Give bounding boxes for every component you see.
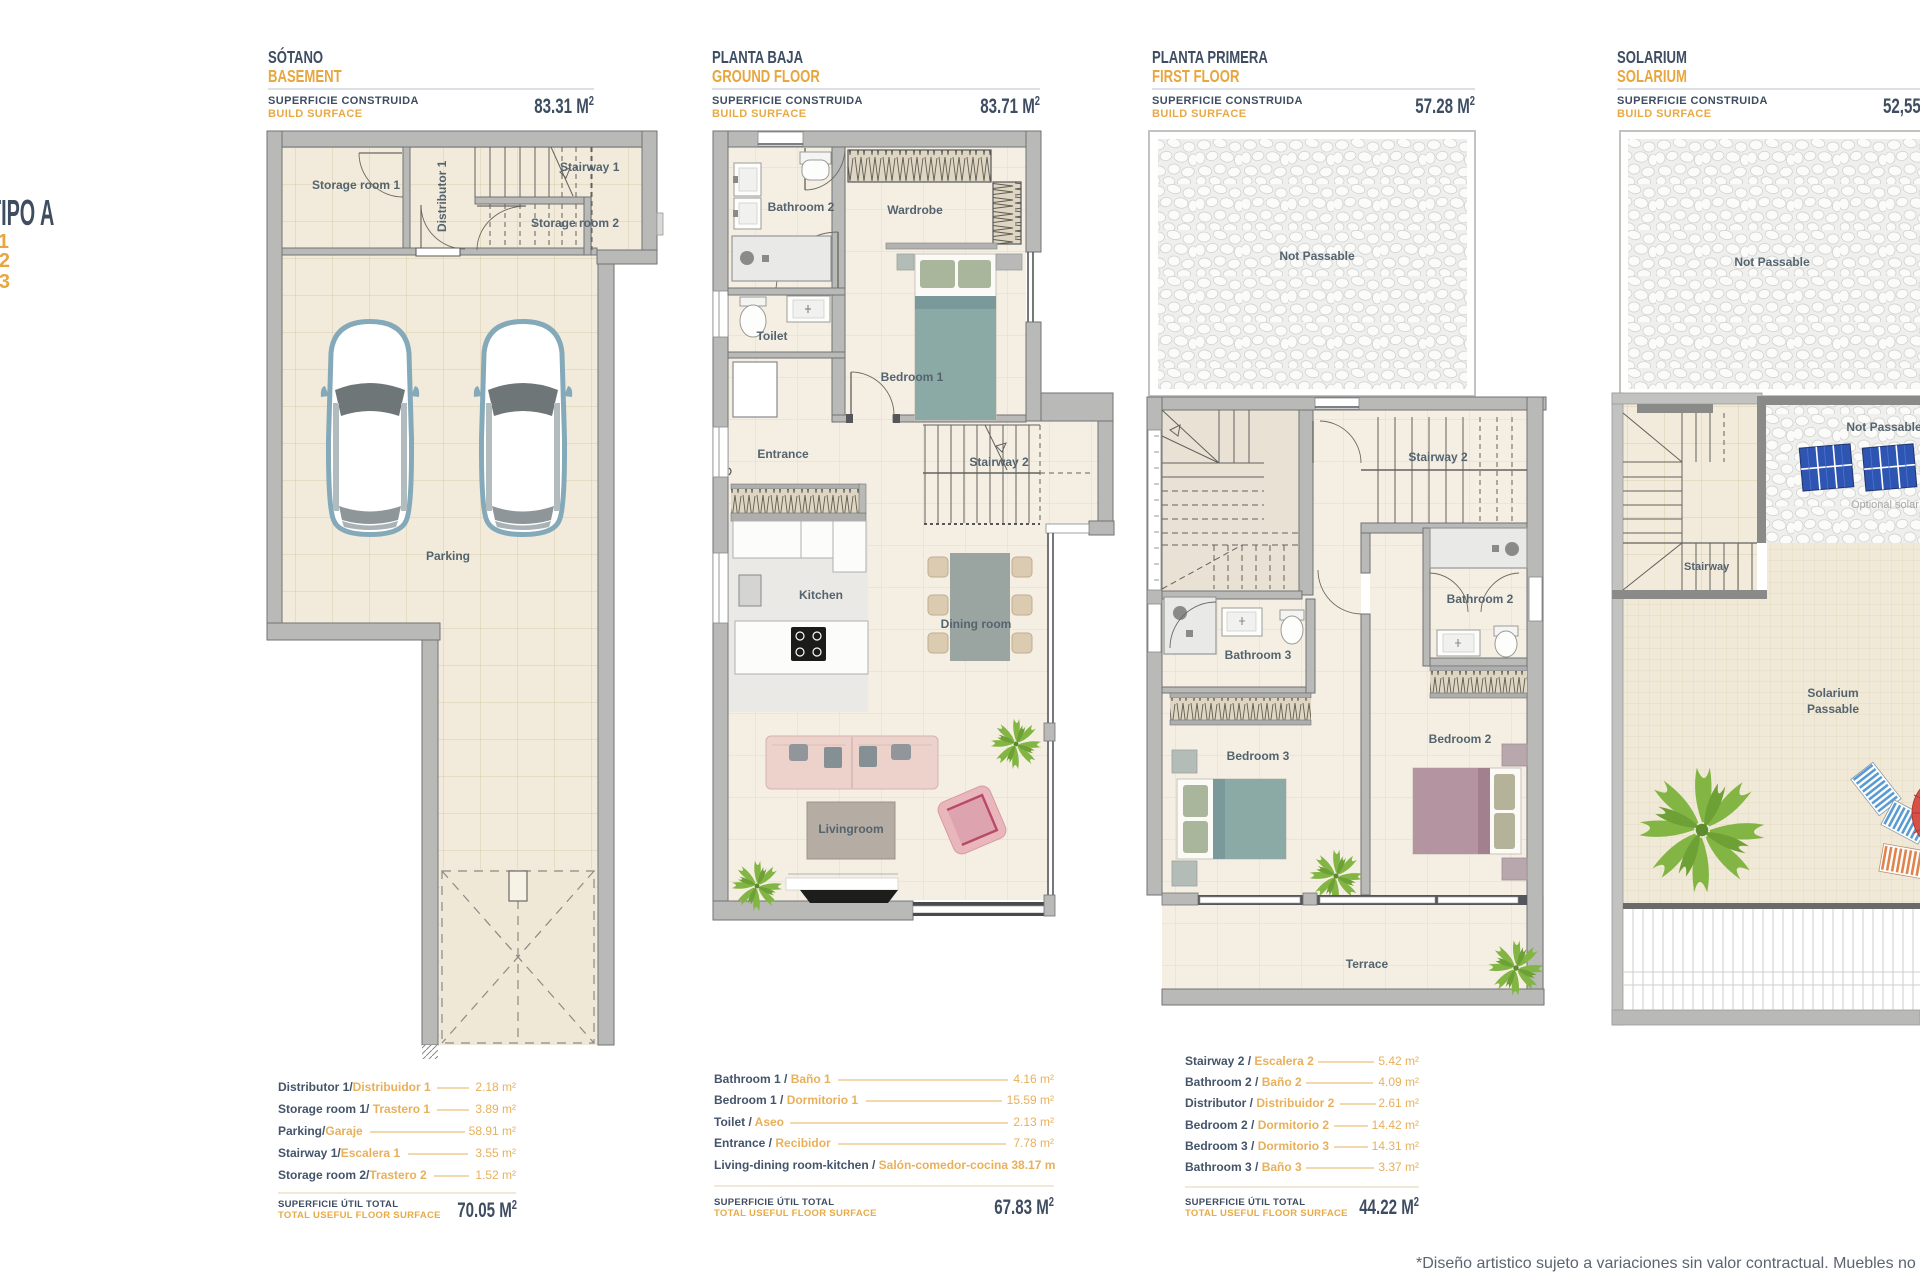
svg-text:Distributor / Distribuidor 2: Distributor / Distribuidor 2 xyxy=(1185,1096,1335,1110)
svg-text:TOTAL USEFUL FLOOR SURFACE: TOTAL USEFUL FLOOR SURFACE xyxy=(278,1210,441,1221)
svg-text:TOTAL USEFUL FLOOR SURFACE: TOTAL USEFUL FLOOR SURFACE xyxy=(1185,1208,1348,1219)
svg-text:1.52 m²: 1.52 m² xyxy=(475,1168,516,1182)
svg-text:BUILD SURFACE: BUILD SURFACE xyxy=(1617,108,1711,120)
svg-text:GROUND FLOOR: GROUND FLOOR xyxy=(712,67,820,86)
svg-text:Stairway 2: Stairway 2 xyxy=(1408,450,1468,464)
svg-text:3.37 m²: 3.37 m² xyxy=(1378,1160,1419,1174)
svg-text:83.71 M2: 83.71 M2 xyxy=(980,93,1040,117)
svg-text:Stairway 2: Stairway 2 xyxy=(969,455,1029,469)
svg-text:14.42 m²: 14.42 m² xyxy=(1372,1118,1419,1132)
svg-text:Stairway: Stairway xyxy=(1684,561,1730,573)
svg-text:4.09 m²: 4.09 m² xyxy=(1378,1075,1419,1089)
svg-text:15.59 m²: 15.59 m² xyxy=(1007,1093,1054,1107)
svg-text:Not Passable: Not Passable xyxy=(1734,255,1810,269)
svg-text:Livingroom: Livingroom xyxy=(818,822,883,836)
svg-text:Parking/Garaje: Parking/Garaje xyxy=(278,1124,363,1138)
svg-text:2.18 m²: 2.18 m² xyxy=(475,1080,516,1094)
svg-text:Storage room 2/Trastero 2: Storage room 2/Trastero 2 xyxy=(278,1168,427,1182)
svg-text:SUPERFICIE CONSTRUIDA: SUPERFICIE CONSTRUIDA xyxy=(268,95,419,107)
svg-text:Not Passable: Not Passable xyxy=(1846,420,1920,434)
svg-text:Bathroom 2: Bathroom 2 xyxy=(1447,592,1514,606)
svg-text:Bathroom 1 / Baño 1: Bathroom 1 / Baño 1 xyxy=(714,1072,831,1086)
svg-text:BUILD SURFACE: BUILD SURFACE xyxy=(268,108,362,120)
svg-text:57.28 M2: 57.28 M2 xyxy=(1415,93,1475,117)
svg-text:Stairway 1: Stairway 1 xyxy=(560,160,620,174)
svg-text:BUILD SURFACE: BUILD SURFACE xyxy=(712,108,806,120)
svg-text:Toilet: Toilet xyxy=(756,329,787,343)
svg-text:SUPERFICIE CONSTRUIDA: SUPERFICIE CONSTRUIDA xyxy=(1152,95,1303,107)
svg-text:SUPERFICIE ÚTIL TOTAL: SUPERFICIE ÚTIL TOTAL xyxy=(714,1196,834,1208)
svg-text:Terrace: Terrace xyxy=(1346,957,1389,971)
svg-text:SOLARIUM: SOLARIUM xyxy=(1617,67,1687,86)
svg-text:2.61 m²: 2.61 m² xyxy=(1378,1096,1419,1110)
svg-text:Bedroom 3: Bedroom 3 xyxy=(1227,749,1290,763)
svg-text:Optional solar p: Optional solar p xyxy=(1851,499,1920,511)
svg-text:Toilet / Aseo: Toilet / Aseo xyxy=(714,1115,784,1129)
svg-text:Bathroom 3: Bathroom 3 xyxy=(1225,648,1292,662)
svg-text:FIRST FLOOR: FIRST FLOOR xyxy=(1152,67,1239,86)
svg-text:Bathroom 3 / Baño 3: Bathroom 3 / Baño 3 xyxy=(1185,1160,1302,1174)
svg-text:SÓTANO: SÓTANO xyxy=(268,47,323,67)
svg-text:2: 2 xyxy=(0,250,10,272)
svg-text:70.05 M2: 70.05 M2 xyxy=(457,1197,517,1221)
svg-text:Bedroom 2: Bedroom 2 xyxy=(1429,732,1492,746)
svg-text:Stairway 2 / Escalera 2: Stairway 2 / Escalera 2 xyxy=(1185,1054,1314,1068)
svg-text:58.91 m²: 58.91 m² xyxy=(469,1124,516,1138)
svg-text:Storage room 2: Storage room 2 xyxy=(531,216,619,230)
svg-text:Living-dining room-kitchen / S: Living-dining room-kitchen / Salón-comed… xyxy=(714,1158,1055,1172)
svg-text:Bedroom 1: Bedroom 1 xyxy=(881,370,944,384)
svg-text:SUPERFICIE ÚTIL TOTAL: SUPERFICIE ÚTIL TOTAL xyxy=(278,1198,398,1210)
svg-text:14.31 m²: 14.31 m² xyxy=(1372,1139,1419,1153)
svg-text:SUPERFICIE CONSTRUIDA: SUPERFICIE CONSTRUIDA xyxy=(712,95,863,107)
svg-text:Solarium: Solarium xyxy=(1807,686,1858,700)
svg-text:67.83 M2: 67.83 M2 xyxy=(994,1194,1054,1218)
svg-text:83.31 M2: 83.31 M2 xyxy=(534,93,594,117)
svg-text:Entrance / Recibidor: Entrance / Recibidor xyxy=(714,1136,831,1150)
svg-text:5.42 m²: 5.42 m² xyxy=(1378,1054,1419,1068)
svg-text:Bathroom 2: Bathroom 2 xyxy=(768,200,835,214)
svg-text:Stairway 1/Escalera 1: Stairway 1/Escalera 1 xyxy=(278,1146,400,1160)
svg-text:3.55 m²: 3.55 m² xyxy=(475,1146,516,1160)
svg-text:44.22 M2: 44.22 M2 xyxy=(1359,1194,1419,1218)
svg-text:TIPO A: TIPO A xyxy=(0,194,54,234)
svg-text:3.89 m²: 3.89 m² xyxy=(475,1102,516,1116)
svg-text:Kitchen: Kitchen xyxy=(799,588,843,602)
svg-text:Bedroom 1 / Dormitorio 1: Bedroom 1 / Dormitorio 1 xyxy=(714,1093,858,1107)
svg-text:TOTAL USEFUL FLOOR SURFACE: TOTAL USEFUL FLOOR SURFACE xyxy=(714,1208,877,1219)
svg-text:SUPERFICIE CONSTRUIDA: SUPERFICIE CONSTRUIDA xyxy=(1617,95,1768,107)
svg-text:Entrance: Entrance xyxy=(757,447,809,461)
svg-text:BASEMENT: BASEMENT xyxy=(268,67,342,86)
svg-text:Distributor 1: Distributor 1 xyxy=(435,160,449,232)
svg-text:SOLARIUM: SOLARIUM xyxy=(1617,48,1687,67)
svg-text:PLANTA BAJA: PLANTA BAJA xyxy=(712,48,803,67)
svg-text:7.78 m²: 7.78 m² xyxy=(1013,1136,1054,1150)
svg-text:Distributor 1/Distribuidor 1: Distributor 1/Distribuidor 1 xyxy=(278,1080,431,1094)
svg-text:*Diseño artistico sujeto a var: *Diseño artistico sujeto a variaciones s… xyxy=(1416,1255,1916,1272)
svg-text:BUILD SURFACE: BUILD SURFACE xyxy=(1152,108,1246,120)
svg-text:Bedroom 2 / Dormitorio 2: Bedroom 2 / Dormitorio 2 xyxy=(1185,1118,1329,1132)
svg-text:Wardrobe: Wardrobe xyxy=(887,203,943,217)
svg-text:Parking: Parking xyxy=(426,549,470,563)
svg-text:SUPERFICIE ÚTIL TOTAL: SUPERFICIE ÚTIL TOTAL xyxy=(1185,1196,1305,1208)
svg-text:PLANTA PRIMERA: PLANTA PRIMERA xyxy=(1152,48,1268,67)
svg-text:Passable: Passable xyxy=(1807,702,1859,716)
svg-text:Bedroom 3 / Dormitorio 3: Bedroom 3 / Dormitorio 3 xyxy=(1185,1139,1329,1153)
svg-text:Bathroom 2 / Baño 2: Bathroom 2 / Baño 2 xyxy=(1185,1075,1302,1089)
svg-text:3: 3 xyxy=(0,271,10,293)
svg-text:4.16 m²: 4.16 m² xyxy=(1013,1072,1054,1086)
svg-text:52,55 M2: 52,55 M2 xyxy=(1883,93,1920,117)
svg-text:Storage room 1: Storage room 1 xyxy=(312,178,400,192)
svg-text:Dining room: Dining room xyxy=(941,617,1012,631)
svg-text:Not Passable: Not Passable xyxy=(1279,249,1355,263)
svg-text:Storage room 1/ Trastero 1: Storage room 1/ Trastero 1 xyxy=(278,1102,430,1116)
svg-text:2.13 m²: 2.13 m² xyxy=(1013,1115,1054,1129)
